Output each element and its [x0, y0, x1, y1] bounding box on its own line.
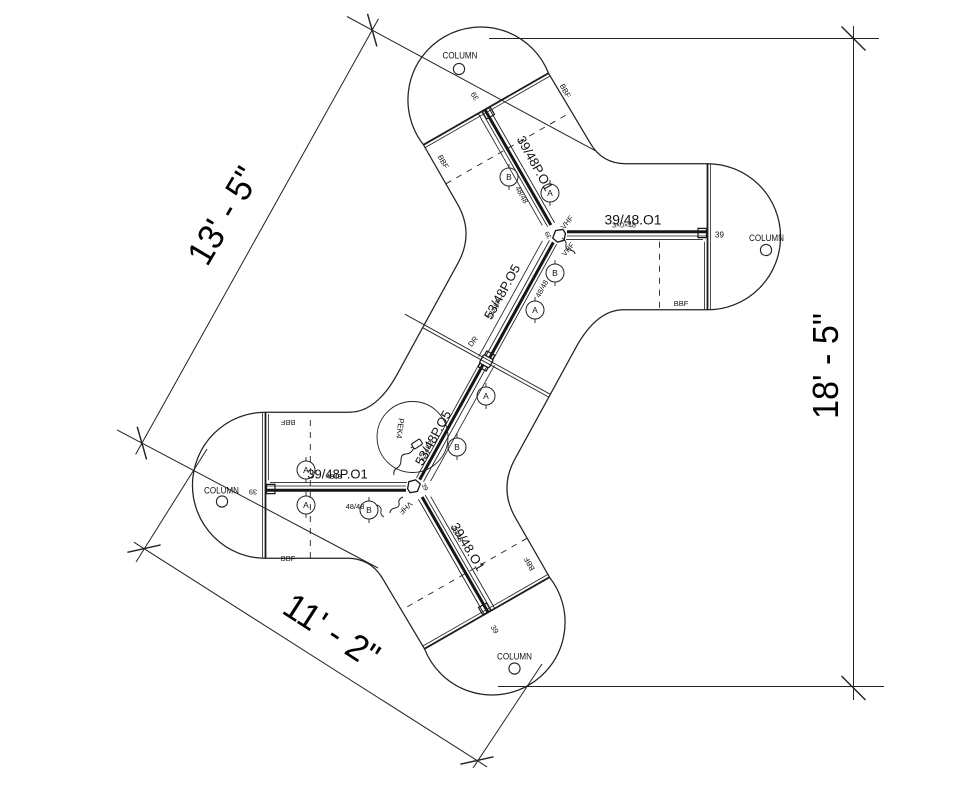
- svg-text:BBF: BBF: [281, 554, 296, 563]
- svg-text:18' - 5": 18' - 5": [805, 313, 846, 419]
- svg-text:A: A: [532, 305, 538, 315]
- svg-text:B: B: [454, 442, 460, 452]
- svg-text:COLUMN: COLUMN: [749, 233, 784, 243]
- svg-text:4848: 4848: [326, 474, 342, 481]
- svg-text:39: 39: [715, 231, 724, 240]
- svg-text:COLUMN: COLUMN: [204, 486, 239, 496]
- svg-text:BBF: BBF: [280, 418, 295, 427]
- svg-text:39: 39: [249, 488, 257, 497]
- svg-text:A: A: [303, 500, 309, 510]
- svg-text:COLUMN: COLUMN: [497, 652, 532, 662]
- svg-text:B: B: [366, 505, 372, 515]
- svg-text:48/48: 48/48: [346, 502, 365, 511]
- svg-text:A: A: [483, 391, 489, 401]
- svg-text:3×0×48: 3×0×48: [612, 223, 636, 230]
- svg-text:BBF: BBF: [674, 299, 689, 308]
- svg-text:COLUMN: COLUMN: [443, 51, 478, 61]
- svg-text:B: B: [552, 268, 558, 278]
- svg-text:B: B: [506, 172, 512, 182]
